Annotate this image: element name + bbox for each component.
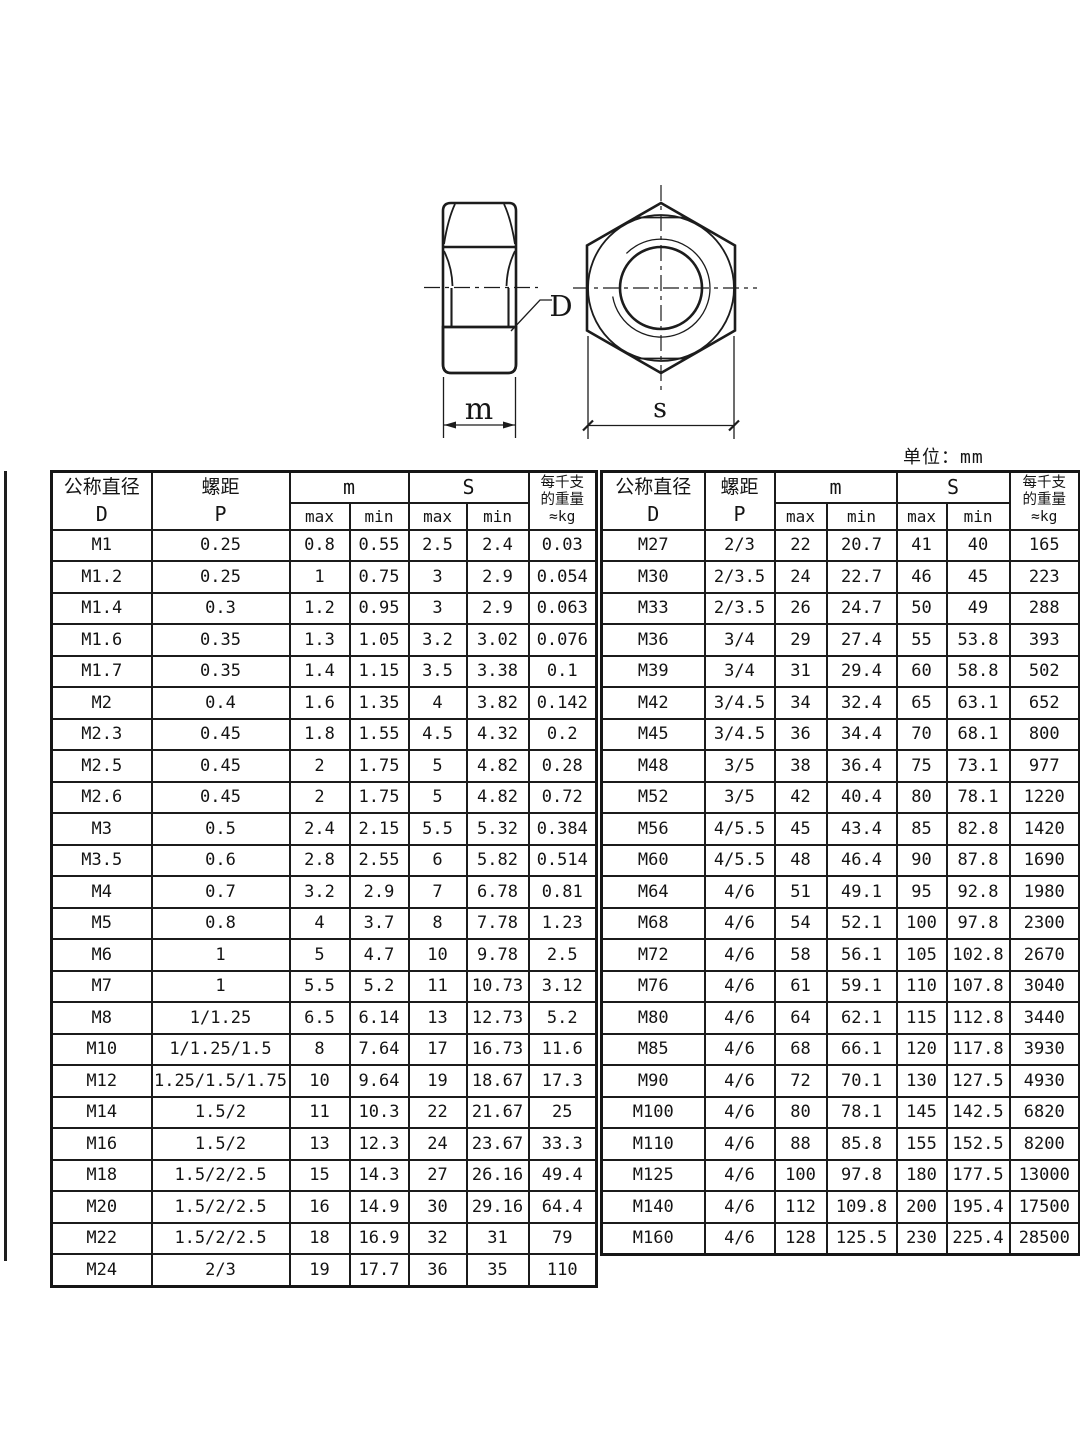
spec-cell: 16 (290, 1191, 350, 1223)
table-row: M1404/6112109.8200195.417500 (602, 1191, 1080, 1223)
spec-cell: 7 (409, 876, 467, 908)
spec-cell: 2.4 (290, 813, 350, 845)
spec-cell: 97.8 (827, 1160, 897, 1192)
spec-cell: 21.67 (467, 1097, 529, 1129)
spec-cell: M125 (602, 1160, 705, 1192)
spec-cell: 1.55 (350, 719, 409, 751)
spec-cell: 17.3 (529, 1065, 597, 1097)
spec-cell: 130 (897, 1065, 947, 1097)
spec-cell: 800 (1010, 719, 1080, 751)
spec-cell: 29 (775, 624, 827, 656)
spec-cell: 3/5 (705, 750, 775, 782)
spec-cell: 51 (775, 876, 827, 908)
spec-cell: 1.15 (350, 656, 409, 688)
spec-cell: 31 (775, 656, 827, 688)
spec-cell: M76 (602, 971, 705, 1003)
spec-cell: 19 (290, 1254, 350, 1286)
spec-cell: 1.3 (290, 624, 350, 656)
table-row: M715.55.21110.733.12 (52, 971, 597, 1003)
spec-cell: 95 (897, 876, 947, 908)
spec-cell: 30 (409, 1191, 467, 1223)
spec-cell: 72 (775, 1065, 827, 1097)
table-row: M453/4.53634.47068.1800 (602, 719, 1080, 751)
spec-cell: 2.9 (467, 593, 529, 625)
spec-cell: 3/5 (705, 782, 775, 814)
spec-cell: 0.7 (152, 876, 290, 908)
spec-cell: 10.73 (467, 971, 529, 1003)
spec-cell: 68.1 (947, 719, 1010, 751)
spec-cell: 4/5.5 (705, 813, 775, 845)
header-thread-pitch: 螺距 P (152, 472, 290, 530)
table-row: M1.60.351.31.053.23.020.076 (52, 624, 597, 656)
spec-cell: 42 (775, 782, 827, 814)
spec-cell: 3/4 (705, 624, 775, 656)
spec-cell: 5.2 (350, 971, 409, 1003)
spec-cell: M1.4 (52, 593, 152, 625)
table-row: M10.250.80.552.52.40.03 (52, 530, 597, 562)
spec-cell: 1.5/2 (152, 1128, 290, 1160)
spec-cell: M45 (602, 719, 705, 751)
spec-cell: 41 (897, 530, 947, 562)
spec-cell: 85.8 (827, 1128, 897, 1160)
spec-cell: M160 (602, 1223, 705, 1255)
spec-cell: 1/1.25 (152, 1002, 290, 1034)
spec-cell: 56.1 (827, 939, 897, 971)
header-weight-per-thousand: 每千支 的重量 ≈kg (529, 472, 597, 530)
spec-cell: 60 (897, 656, 947, 688)
spec-cell: 80 (897, 782, 947, 814)
spec-cell: M42 (602, 687, 705, 719)
spec-cell: 97.8 (947, 908, 1010, 940)
spec-cell: 230 (897, 1223, 947, 1255)
height-dimension: m (444, 377, 516, 438)
spec-cell: 19 (409, 1065, 467, 1097)
spec-cell: 4/6 (705, 1191, 775, 1223)
spec-cell: 2.4 (467, 530, 529, 562)
spec-cell: 36 (409, 1254, 467, 1286)
spec-cell: 3 (409, 593, 467, 625)
spec-cell: 6.5 (290, 1002, 350, 1034)
spec-table-right: 公称直径 D 螺距 P m S 每千支 的重量 ≈kg max min max (600, 470, 1080, 1256)
spec-cell: 36.4 (827, 750, 897, 782)
spec-cell: 24.7 (827, 593, 897, 625)
spec-cell: 1.5/2 (152, 1097, 290, 1129)
spec-cell: 0.6 (152, 845, 290, 877)
spec-cell: 652 (1010, 687, 1080, 719)
spec-cell: 0.81 (529, 876, 597, 908)
spec-cell: M7 (52, 971, 152, 1003)
spec-cell: 48 (775, 845, 827, 877)
spec-cell: 3.7 (350, 908, 409, 940)
spec-cell: 3.12 (529, 971, 597, 1003)
spec-cell: M2.6 (52, 782, 152, 814)
spec-cell: 2 (290, 782, 350, 814)
spec-cell: 24 (409, 1128, 467, 1160)
table-row: M423/4.53432.46563.1652 (602, 687, 1080, 719)
spec-cell: M3.5 (52, 845, 152, 877)
table-row: M20.41.61.3543.820.142 (52, 687, 597, 719)
spec-cell: 34.4 (827, 719, 897, 751)
spec-cell: 62.1 (827, 1002, 897, 1034)
spec-cell: 0.1 (529, 656, 597, 688)
table-row: M302/3.52422.74645223 (602, 561, 1080, 593)
spec-cell: 13 (409, 1002, 467, 1034)
table-row: M2.50.4521.7554.820.28 (52, 750, 597, 782)
spec-cell: 58 (775, 939, 827, 971)
spec-cell: M6 (52, 939, 152, 971)
spec-cell: 5 (290, 939, 350, 971)
spec-cell: M90 (602, 1065, 705, 1097)
spec-cell: M100 (602, 1097, 705, 1129)
spec-cell: 45 (775, 813, 827, 845)
table-row: M50.843.787.781.23 (52, 908, 597, 940)
spec-cell: 18.67 (467, 1065, 529, 1097)
spec-cell: 0.8 (290, 530, 350, 562)
spec-cell: 32.4 (827, 687, 897, 719)
spec-cell: 0.063 (529, 593, 597, 625)
spec-cell: 40 (947, 530, 1010, 562)
nut-technical-drawing: D m s (415, 172, 815, 467)
spec-cell: 4.32 (467, 719, 529, 751)
section-hatch (443, 327, 516, 373)
spec-cell: 977 (1010, 750, 1080, 782)
spec-cell: 115 (897, 1002, 947, 1034)
spec-cell: 5.2 (529, 1002, 597, 1034)
table-row: M483/53836.47573.1977 (602, 750, 1080, 782)
spec-cell: 13 (290, 1128, 350, 1160)
spec-cell: M18 (52, 1160, 152, 1192)
spec-cell: 78.1 (827, 1097, 897, 1129)
table-row: M1.40.31.20.9532.90.063 (52, 593, 597, 625)
spec-cell: 26.16 (467, 1160, 529, 1192)
spec-cell: 7.64 (350, 1034, 409, 1066)
spec-cell: M36 (602, 624, 705, 656)
spec-cell: 5 (409, 750, 467, 782)
spec-cell: 11 (409, 971, 467, 1003)
spec-cell: 4/6 (705, 971, 775, 1003)
spec-cell: 4.5 (409, 719, 467, 751)
table-row: M1.70.351.41.153.53.380.1 (52, 656, 597, 688)
table-row: M523/54240.48078.11220 (602, 782, 1080, 814)
table-row: M2.60.4521.7554.820.72 (52, 782, 597, 814)
spec-cell: 45 (947, 561, 1010, 593)
spec-cell: 4/5.5 (705, 845, 775, 877)
spec-cell: 2/3 (705, 530, 775, 562)
spec-cell: 0.076 (529, 624, 597, 656)
spec-cell: 17 (409, 1034, 467, 1066)
spec-cell: 223 (1010, 561, 1080, 593)
table-row: M141.5/21110.32221.6725 (52, 1097, 597, 1129)
spec-cell: 4/6 (705, 1097, 775, 1129)
spec-cell: M64 (602, 876, 705, 908)
spec-cell: M22 (52, 1223, 152, 1255)
spec-cell: 1.23 (529, 908, 597, 940)
spec-cell: 68 (775, 1034, 827, 1066)
spec-cell: 3.38 (467, 656, 529, 688)
spec-cell: 23.67 (467, 1128, 529, 1160)
spec-cell: M8 (52, 1002, 152, 1034)
spec-cell: 27.4 (827, 624, 897, 656)
nut-side-view (424, 203, 538, 373)
spec-cell: 1.5/2/2.5 (152, 1160, 290, 1192)
spec-cell: 8200 (1010, 1128, 1080, 1160)
spec-cell: 2.5 (409, 530, 467, 562)
table-row: M604/5.54846.49087.81690 (602, 845, 1080, 877)
header-m-min: min (827, 503, 897, 530)
label-bore-diameter: D (549, 289, 572, 323)
spec-cell: M14 (52, 1097, 152, 1129)
spec-cell: 1220 (1010, 782, 1080, 814)
spec-cell: M3 (52, 813, 152, 845)
header-s-max: max (897, 503, 947, 530)
spec-cell: M33 (602, 593, 705, 625)
spec-cell: 2/3.5 (705, 561, 775, 593)
spec-cell: 0.4 (152, 687, 290, 719)
spec-cell: 0.45 (152, 719, 290, 751)
spec-cell: M30 (602, 561, 705, 593)
spec-cell: M80 (602, 1002, 705, 1034)
table-row: M1104/68885.8155152.58200 (602, 1128, 1080, 1160)
spec-cell: 8 (409, 908, 467, 940)
table-row: M161.5/21312.32423.6733.3 (52, 1128, 597, 1160)
spec-cell: 2300 (1010, 908, 1080, 940)
spec-cell: 5.82 (467, 845, 529, 877)
spec-cell: 4.7 (350, 939, 409, 971)
spec-cell: 17.7 (350, 1254, 409, 1286)
spec-cell: 32 (409, 1223, 467, 1255)
spec-cell: 2/3 (152, 1254, 290, 1286)
spec-cell: 155 (897, 1128, 947, 1160)
spec-cell: 1.6 (290, 687, 350, 719)
spec-cell: M60 (602, 845, 705, 877)
header-s-min: min (947, 503, 1010, 530)
spec-cell: 4/6 (705, 908, 775, 940)
spec-cell: M1.6 (52, 624, 152, 656)
spec-cell: 29.4 (827, 656, 897, 688)
spec-cell: 61 (775, 971, 827, 1003)
spec-cell: 4930 (1010, 1065, 1080, 1097)
spec-cell: 0.8 (152, 908, 290, 940)
spec-cell: 0.25 (152, 561, 290, 593)
table-row: M764/66159.1110107.83040 (602, 971, 1080, 1003)
spec-cell: 0.28 (529, 750, 597, 782)
spec-cell: 64.4 (529, 1191, 597, 1223)
spec-cell: 4/6 (705, 1002, 775, 1034)
spec-cell: 105 (897, 939, 947, 971)
table-row: M3.50.62.82.5565.820.514 (52, 845, 597, 877)
spec-cell: 59.1 (827, 971, 897, 1003)
spec-cell: M1.2 (52, 561, 152, 593)
spec-cell: 288 (1010, 593, 1080, 625)
header-s-group: S (897, 472, 1010, 503)
spec-cell: 28500 (1010, 1223, 1080, 1255)
table-row: M1.20.2510.7532.90.054 (52, 561, 597, 593)
spec-cell: 15 (290, 1160, 350, 1192)
spec-table-left-body: M10.250.80.552.52.40.03M1.20.2510.7532.9… (52, 530, 597, 1287)
spec-cell: 79 (529, 1223, 597, 1255)
spec-table-right-body: M272/32220.74140165M302/3.52422.74645223… (602, 530, 1080, 1255)
hex-nut-spec-sheet: D m s (0, 0, 1080, 1432)
spec-cell: 22 (775, 530, 827, 562)
spec-cell: 1/1.25/1.5 (152, 1034, 290, 1066)
spec-cell: 1980 (1010, 876, 1080, 908)
table-row: M684/65452.110097.82300 (602, 908, 1080, 940)
spec-cell: 26 (775, 593, 827, 625)
table-row: M121.25/1.5/1.75109.641918.6717.3 (52, 1065, 597, 1097)
spec-cell: 120 (897, 1034, 947, 1066)
table-row: M724/65856.1105102.82670 (602, 939, 1080, 971)
header-s-min: min (467, 503, 529, 530)
spec-cell: 31 (467, 1223, 529, 1255)
spec-cell: 3.82 (467, 687, 529, 719)
spec-cell: 12.3 (350, 1128, 409, 1160)
header-m-max: max (290, 503, 350, 530)
spec-cell: 142.5 (947, 1097, 1010, 1129)
table-row: M1604/6128125.5230225.428500 (602, 1223, 1080, 1255)
spec-cell: 165 (1010, 530, 1080, 562)
spec-cell: M52 (602, 782, 705, 814)
spec-cell: 1.8 (290, 719, 350, 751)
spec-cell: 13000 (1010, 1160, 1080, 1192)
spec-cell: 8 (290, 1034, 350, 1066)
spec-cell: 100 (775, 1160, 827, 1192)
spec-cell: 38 (775, 750, 827, 782)
spec-cell: 1.5/2/2.5 (152, 1223, 290, 1255)
nut-front-view (573, 185, 757, 393)
spec-cell: 11 (290, 1097, 350, 1129)
table-row: M804/66462.1115112.83440 (602, 1002, 1080, 1034)
spec-cell: M110 (602, 1128, 705, 1160)
spec-cell: 3.2 (290, 876, 350, 908)
spec-cell: 53.8 (947, 624, 1010, 656)
spec-cell: 4/6 (705, 1034, 775, 1066)
spec-cell: 125.5 (827, 1223, 897, 1255)
spec-cell: 4.82 (467, 750, 529, 782)
spec-cell: 92.8 (947, 876, 1010, 908)
spec-cell: 152.5 (947, 1128, 1010, 1160)
table-row: M1004/68078.1145142.56820 (602, 1097, 1080, 1129)
spec-cell: 33.3 (529, 1128, 597, 1160)
spec-cell: 82.8 (947, 813, 1010, 845)
spec-cell: 6.78 (467, 876, 529, 908)
spec-cell: 63.1 (947, 687, 1010, 719)
spec-cell: 177.5 (947, 1160, 1010, 1192)
spec-cell: 109.8 (827, 1191, 897, 1223)
spec-cell: 2.9 (467, 561, 529, 593)
spec-cell: 1 (152, 971, 290, 1003)
spec-cell: 78.1 (947, 782, 1010, 814)
spec-cell: 9.78 (467, 939, 529, 971)
spec-cell: 2.5 (529, 939, 597, 971)
spec-cell: 0.054 (529, 561, 597, 593)
spec-cell: 6820 (1010, 1097, 1080, 1129)
spec-cell: M12 (52, 1065, 152, 1097)
spec-cell: M2 (52, 687, 152, 719)
spec-cell: 0.2 (529, 719, 597, 751)
table-row: M393/43129.46058.8502 (602, 656, 1080, 688)
spec-cell: 52.1 (827, 908, 897, 940)
spec-cell: 1 (290, 561, 350, 593)
spec-cell: 3040 (1010, 971, 1080, 1003)
spec-cell: 5.5 (290, 971, 350, 1003)
spec-cell: 0.45 (152, 782, 290, 814)
table-row: M1254/610097.8180177.513000 (602, 1160, 1080, 1192)
spec-cell: 75 (897, 750, 947, 782)
spec-cell: 12.73 (467, 1002, 529, 1034)
spec-cell: 10.3 (350, 1097, 409, 1129)
spec-cell: 46 (897, 561, 947, 593)
spec-cell: 85 (897, 813, 947, 845)
spec-cell: 107.8 (947, 971, 1010, 1003)
spec-cell: 180 (897, 1160, 947, 1192)
spec-cell: 2/3.5 (705, 593, 775, 625)
spec-cell: 2.8 (290, 845, 350, 877)
header-m-max: max (775, 503, 827, 530)
spec-cell: 1.5/2/2.5 (152, 1191, 290, 1223)
table-row: M2.30.451.81.554.54.320.2 (52, 719, 597, 751)
spec-cell: 5 (409, 782, 467, 814)
spec-cell: M48 (602, 750, 705, 782)
spec-table-left: 公称直径 D 螺距 P m S 每千支 的重量 ≈kg max min max (50, 470, 598, 1288)
spec-cell: 4/6 (705, 1128, 775, 1160)
spec-cell: 1.2 (290, 593, 350, 625)
spec-cell: 36 (775, 719, 827, 751)
spec-cell: 4 (290, 908, 350, 940)
spec-cell: 88 (775, 1128, 827, 1160)
spec-cell: 3 (409, 561, 467, 593)
header-nominal-diameter: 公称直径 D (52, 472, 152, 530)
spec-cell: M4 (52, 876, 152, 908)
spec-cell: 49.4 (529, 1160, 597, 1192)
spec-cell: M1.7 (52, 656, 152, 688)
spec-cell: 2670 (1010, 939, 1080, 971)
spec-cell: M24 (52, 1254, 152, 1286)
spec-cell: 1420 (1010, 813, 1080, 845)
spec-cell: 1.75 (350, 782, 409, 814)
spec-cell: 1.75 (350, 750, 409, 782)
spec-cell: M5 (52, 908, 152, 940)
header-s-max: max (409, 503, 467, 530)
spec-cell: 0.35 (152, 656, 290, 688)
spec-cell: 73.1 (947, 750, 1010, 782)
spec-cell: 2 (290, 750, 350, 782)
table-row: M30.52.42.155.55.320.384 (52, 813, 597, 845)
spec-cell: 1.4 (290, 656, 350, 688)
spec-cell: 2.9 (350, 876, 409, 908)
spec-cell: 2.15 (350, 813, 409, 845)
spec-cell: 502 (1010, 656, 1080, 688)
spec-cell: 70.1 (827, 1065, 897, 1097)
table-row: M644/65149.19592.81980 (602, 876, 1080, 908)
spec-cell: 0.3 (152, 593, 290, 625)
spec-cell: 0.514 (529, 845, 597, 877)
spec-cell: 0.384 (529, 813, 597, 845)
spec-cell: 1.35 (350, 687, 409, 719)
spec-cell: 20.7 (827, 530, 897, 562)
spec-cell: 43.4 (827, 813, 897, 845)
spec-cell: M85 (602, 1034, 705, 1066)
spec-cell: 112.8 (947, 1002, 1010, 1034)
spec-cell: 27 (409, 1160, 467, 1192)
table-row: M854/66866.1120117.83930 (602, 1034, 1080, 1066)
spec-cell: M20 (52, 1191, 152, 1223)
table-row: M332/3.52624.75049288 (602, 593, 1080, 625)
spec-cell: 64 (775, 1002, 827, 1034)
spec-cell: 70 (897, 719, 947, 751)
spec-cell: 1.25/1.5/1.75 (152, 1065, 290, 1097)
spec-cell: M16 (52, 1128, 152, 1160)
spec-cell: 14.3 (350, 1160, 409, 1192)
